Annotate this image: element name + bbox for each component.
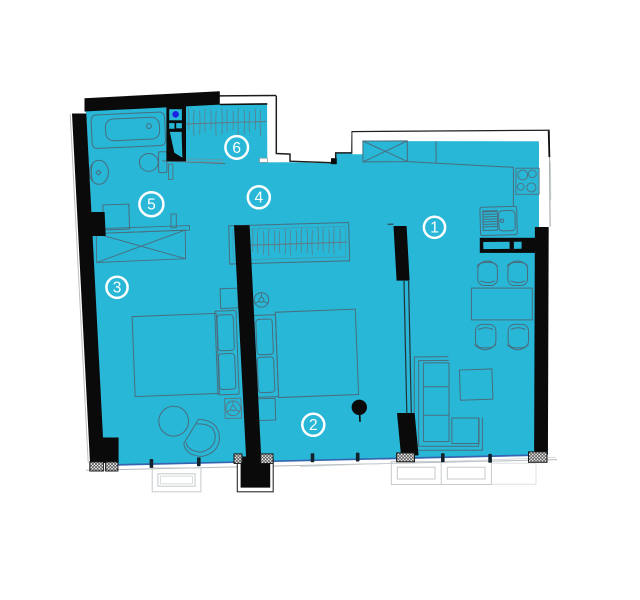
svg-text:3: 3 xyxy=(113,280,122,297)
svg-text:4: 4 xyxy=(254,190,263,207)
svg-text:1: 1 xyxy=(430,220,439,237)
svg-text:5: 5 xyxy=(147,197,156,214)
svg-text:6: 6 xyxy=(232,140,241,157)
svg-text:2: 2 xyxy=(309,417,318,434)
